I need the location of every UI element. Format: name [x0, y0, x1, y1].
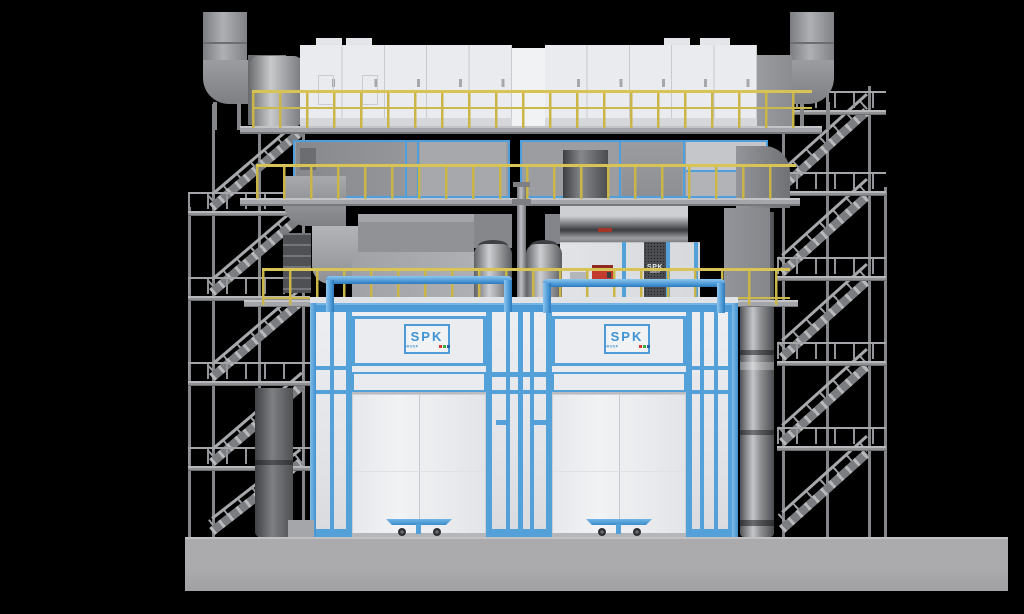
- booth-corner-post: [310, 303, 316, 537]
- logo-dot-red: [439, 345, 442, 348]
- spk-logo-subtext-right: GROUP: [604, 345, 618, 348]
- pipe-frame-left-leg: [504, 280, 512, 312]
- trolley-center-post: [616, 524, 621, 534]
- duct-leg: [213, 102, 217, 130]
- booth-rail-stub: [534, 420, 546, 425]
- landing-rail: [777, 257, 886, 259]
- door-seam: [619, 395, 620, 533]
- mid-band-left: [352, 372, 486, 392]
- stair-landing: [188, 381, 310, 386]
- landing-guard: [777, 259, 886, 274]
- booth-post: [728, 312, 732, 537]
- pipe-frame-left-top: [326, 276, 512, 284]
- trolley-center-post: [416, 524, 421, 534]
- ahu-handles: [545, 79, 757, 87]
- booth-post: [506, 312, 510, 537]
- logo-dot-blue: [447, 345, 450, 348]
- spk-logo-left: SPK GROUP: [404, 324, 450, 354]
- railing-mid-rail: [252, 107, 812, 109]
- pipe-frame-right-top: [543, 279, 725, 287]
- duct-highlight: [740, 362, 774, 370]
- booth-center-post: [518, 312, 523, 537]
- landing-guard: [777, 429, 886, 444]
- door-seam: [419, 395, 420, 533]
- spk-logo-subtext-left: GROUP: [404, 345, 418, 348]
- mid-band-right: [552, 372, 686, 392]
- center-column-collar: [512, 199, 531, 205]
- spk-logo-text-left: SPK: [411, 330, 444, 343]
- landing-rail: [777, 427, 886, 429]
- duct-box: [358, 214, 474, 256]
- door-frame-post: [686, 312, 692, 537]
- duct-joint: [740, 430, 774, 435]
- duct-joint: [255, 460, 293, 465]
- railing-top-rail: [256, 164, 796, 167]
- pipe-frame-left-leg: [326, 280, 334, 312]
- booth-post: [700, 312, 704, 537]
- duct-leg: [826, 102, 830, 130]
- trolley-wheel: [398, 528, 406, 536]
- trolley-wheel: [598, 528, 606, 536]
- trolley-wheel: [433, 528, 441, 536]
- stair-post: [212, 104, 215, 537]
- duct-joint: [740, 350, 774, 355]
- booth-rail: [492, 372, 546, 377]
- railing-top-rail: [252, 90, 812, 93]
- booth-rail: [692, 366, 732, 370]
- booth-door-left: [352, 394, 486, 534]
- landing-rail: [777, 342, 886, 344]
- render-canvas: SPK GROUP SPK GROUP SPK GROUP: [0, 0, 1024, 614]
- stair-post: [868, 86, 871, 537]
- spk-logo-text-right: SPK: [611, 330, 644, 343]
- booth-baseboard: [316, 529, 346, 537]
- stair-landing: [777, 446, 886, 451]
- duct-joint: [740, 520, 774, 526]
- landing-rail: [188, 362, 310, 364]
- stair-flight: [779, 450, 870, 533]
- duct-transition-drum: [560, 206, 688, 244]
- booth-rail: [316, 366, 346, 370]
- booth-rail-stub: [496, 420, 506, 425]
- logo-dot-blue: [647, 345, 650, 348]
- spk-logo-subrow-left: GROUP: [404, 344, 450, 349]
- booth-door-right: [552, 394, 686, 534]
- booth-baseboard: [492, 529, 546, 537]
- railing-posts: [252, 90, 812, 128]
- door-frame-post: [546, 312, 552, 537]
- duct-joint: [790, 42, 834, 44]
- logo-dot-green: [443, 345, 446, 348]
- drum-red-detail: [598, 228, 612, 232]
- trolley-wheel: [633, 528, 641, 536]
- stair-landing: [777, 276, 886, 281]
- booth-baseboard: [692, 529, 732, 537]
- duct-dark-bottom-left: [255, 388, 293, 537]
- landing-guard: [188, 364, 310, 379]
- door-panel-line: [353, 471, 485, 472]
- railing-top-rail: [262, 268, 790, 271]
- landing-guard: [777, 344, 886, 359]
- booth-post: [714, 312, 718, 537]
- spk-logo-subrow-right: GROUP: [604, 344, 650, 349]
- floor-slab: [185, 537, 1008, 591]
- door-frame-post: [486, 312, 492, 537]
- booth-roof-band: [310, 303, 738, 312]
- door-frame-post: [346, 312, 352, 537]
- booth-rail: [316, 390, 346, 394]
- gray-box-bottom-left: [288, 520, 314, 537]
- logo-dot-green: [643, 345, 646, 348]
- spk-logo-right: SPK GROUP: [604, 324, 650, 354]
- duct-joint: [203, 42, 247, 44]
- door-panel-line: [553, 471, 685, 472]
- stair-balusters: [778, 438, 871, 524]
- logo-dot-red: [639, 345, 642, 348]
- stair-landing: [777, 361, 886, 366]
- booth-corner-post: [732, 303, 738, 537]
- pipe-frame-right-leg: [717, 283, 725, 313]
- railing-top: [252, 90, 812, 128]
- booth-post: [330, 312, 334, 537]
- booth-rail: [692, 390, 732, 394]
- pipe-frame-right-leg: [543, 283, 551, 313]
- booth-rail: [492, 390, 546, 394]
- stair-handrail: [781, 348, 867, 426]
